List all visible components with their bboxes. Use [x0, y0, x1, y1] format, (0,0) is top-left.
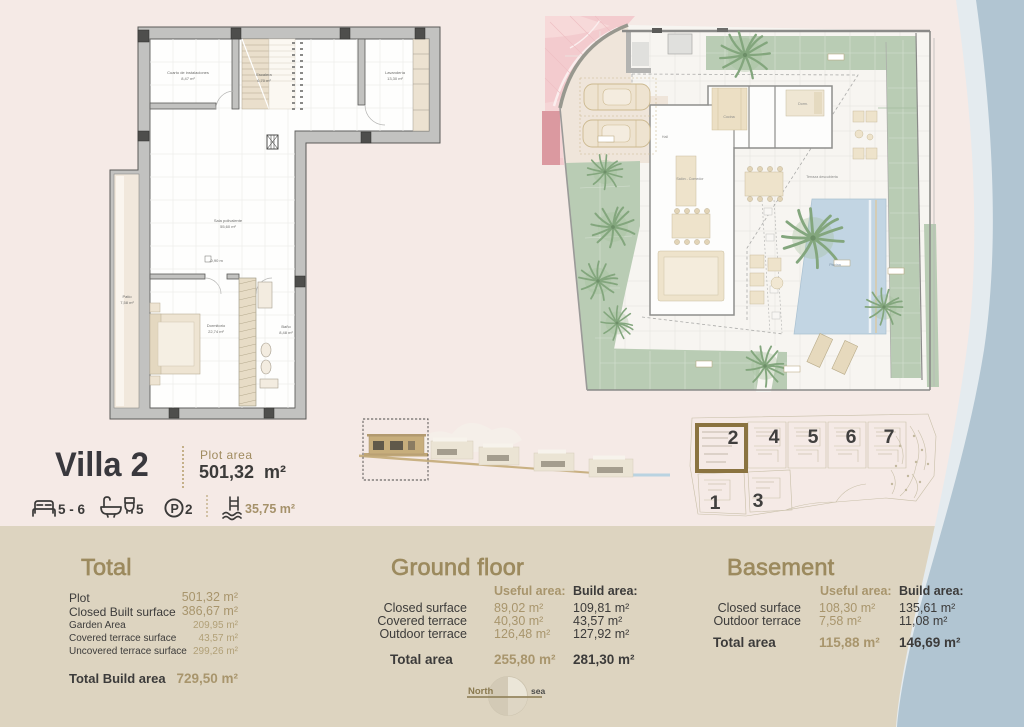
svg-text:Patio: Patio	[122, 294, 132, 299]
svg-text:Terraza descubierta: Terraza descubierta	[806, 175, 838, 179]
svg-text:Hall: Hall	[662, 135, 668, 139]
svg-text:sea: sea	[531, 686, 545, 696]
svg-text:Dormitorio: Dormitorio	[207, 323, 226, 328]
svg-text:3: 3	[753, 490, 764, 512]
svg-text:5 - 6: 5 - 6	[58, 502, 86, 517]
svg-text:P: P	[171, 502, 179, 516]
svg-text:22,74 m²: 22,74 m²	[208, 329, 224, 334]
svg-text:Cuarto de instalaciones: Cuarto de instalaciones	[167, 70, 209, 75]
svg-text:35,75 m²: 35,75 m²	[245, 502, 295, 516]
svg-text:8,47 m²: 8,47 m²	[181, 76, 195, 81]
svg-text:6,70 m²: 6,70 m²	[257, 78, 271, 83]
svg-text:7: 7	[884, 426, 895, 448]
svg-text:6: 6	[846, 426, 857, 448]
svg-text:13,30 m²: 13,30 m²	[387, 76, 403, 81]
svg-text:4: 4	[769, 426, 780, 448]
svg-text:Baño: Baño	[281, 324, 291, 329]
svg-text:8,48 m²: 8,48 m²	[279, 330, 293, 335]
svg-text:North: North	[468, 686, 494, 697]
svg-text:Sala polivalente: Sala polivalente	[214, 218, 243, 223]
svg-text:2: 2	[728, 427, 739, 449]
svg-text:Salón - Comedor: Salón - Comedor	[676, 177, 704, 181]
svg-text:7,58 m²: 7,58 m²	[120, 300, 134, 305]
svg-text:Dorm.: Dorm.	[798, 102, 808, 106]
svg-text:2: 2	[185, 502, 193, 517]
svg-text:Cocina: Cocina	[723, 115, 734, 119]
svg-text:Piscina: Piscina	[829, 263, 841, 267]
svg-text:-0,90 m: -0,90 m	[209, 258, 223, 263]
svg-text:55,60 m²: 55,60 m²	[220, 224, 236, 229]
svg-text:5: 5	[136, 502, 144, 517]
svg-text:5: 5	[808, 426, 819, 448]
svg-text:1: 1	[710, 492, 721, 514]
svg-text:Lavandería: Lavandería	[385, 70, 406, 75]
svg-text:Escalera: Escalera	[256, 72, 272, 77]
